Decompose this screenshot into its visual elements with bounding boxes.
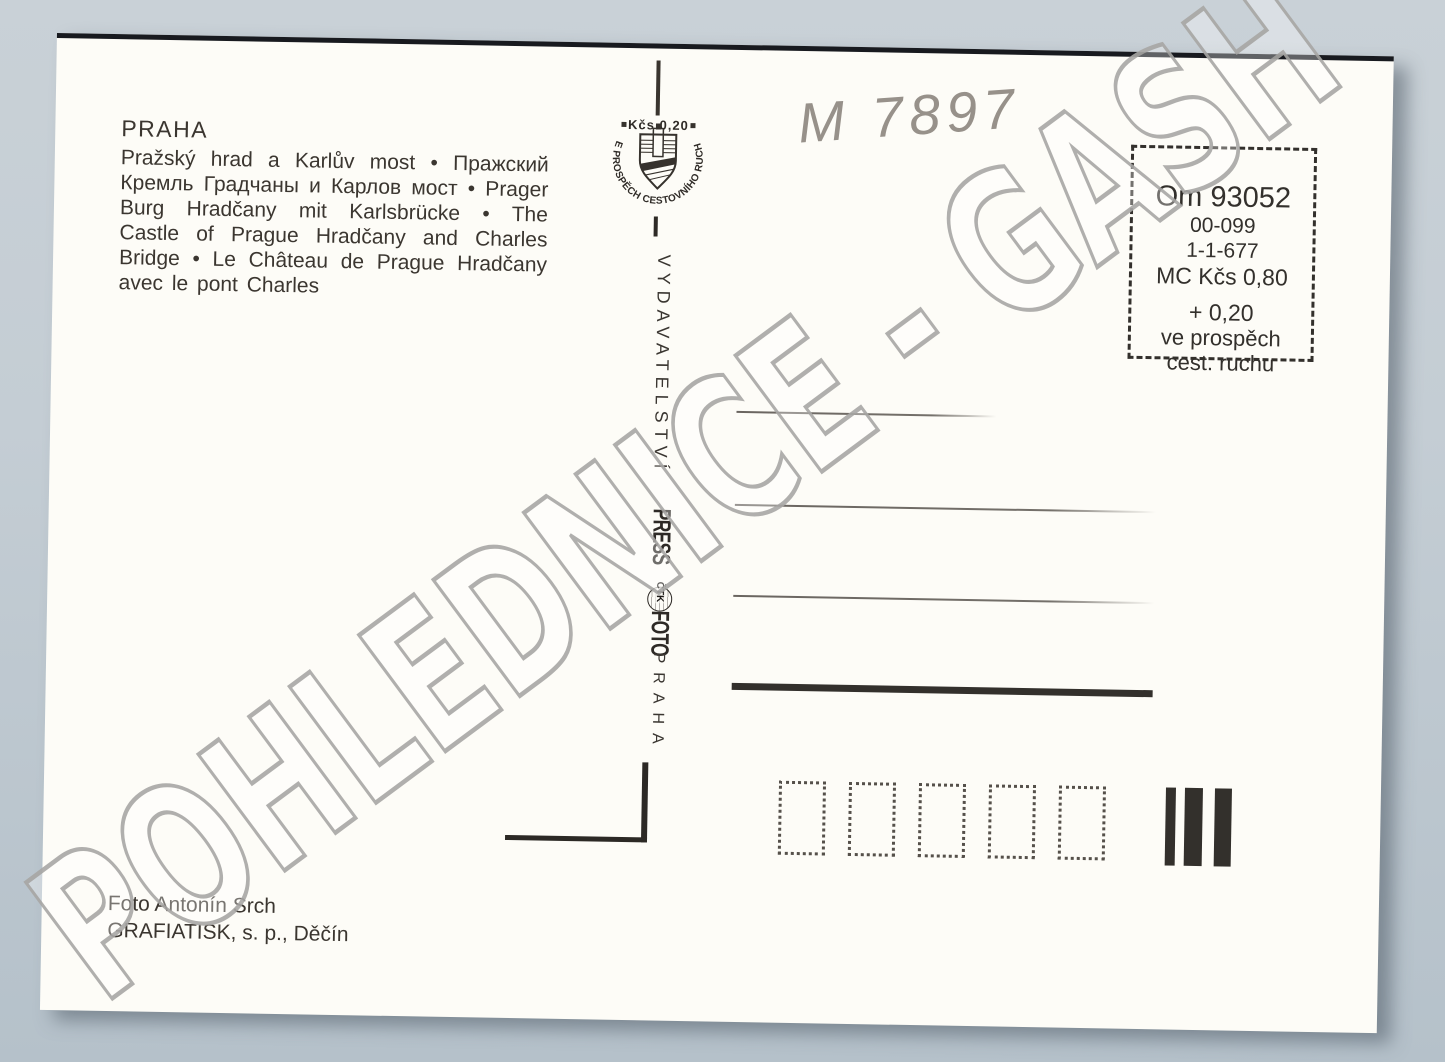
price-box-price: MC Kčs 0,80 [1132, 262, 1312, 292]
postal-code-box [848, 782, 896, 857]
registration-mark-middle [654, 216, 658, 236]
credits-block: Foto Antonín Srch GRAFIATISK, s. p., Děč… [107, 890, 349, 948]
address-line-1 [736, 411, 996, 418]
postcard-title: PRAHA [121, 115, 208, 144]
price-box: Om 93052 00-099 1-1-677 MC Kčs 0,80 + 0,… [1127, 145, 1317, 362]
printer-credit: GRAFIATISK, s. p., Děčín [107, 917, 349, 948]
postal-code-box [778, 781, 826, 856]
ctk-globe-icon: ČTK [647, 586, 672, 611]
city-vertical-text: PRAHA [648, 652, 668, 752]
sorting-bar [1214, 788, 1232, 866]
ctk-text: ČTK [654, 581, 665, 604]
price-box-note: ve prospěch [1131, 324, 1311, 352]
emblem-right-square [690, 123, 695, 128]
crop-corner-mark-horizontal [505, 835, 647, 842]
price-box-line: 00-099 [1133, 212, 1313, 240]
address-thick-line [732, 683, 1153, 697]
sorting-bar [1184, 788, 1203, 866]
price-box-surcharge: + 0,20 [1131, 298, 1311, 327]
emblem-castle-tower [653, 128, 663, 156]
press-logo-foto-text: FOTO [644, 610, 674, 656]
press-logo-press-text: PRESS [646, 508, 676, 564]
postal-code-boxes [778, 781, 1106, 861]
price-box-line: 1-1-677 [1132, 237, 1312, 265]
price-box-note: cest. ruchu [1130, 349, 1310, 377]
registration-mark-top [656, 60, 661, 115]
price-box-code: Om 93052 [1133, 180, 1314, 215]
address-line-3 [733, 595, 1154, 604]
scan-background: PRAHA Pražský hrad a Karlův most • Пражс… [0, 0, 1445, 1062]
publisher-vertical-text: VYDAVATELSTVÍ [649, 254, 674, 474]
postal-code-box [918, 783, 966, 858]
postal-code-box [988, 784, 1036, 859]
postcard-back: PRAHA Pražský hrad a Karlův most • Пражс… [40, 33, 1394, 1033]
emblem-castle-tower-top [656, 123, 661, 129]
sorting-bar [1165, 787, 1176, 865]
handwritten-catalog-number: M 7897 [796, 75, 1023, 155]
photographer-credit: Foto Antonín Srch [108, 890, 350, 921]
address-line-2 [735, 504, 1156, 513]
postcard-caption: Pražský hrad a Karlův most • Пражский Кр… [118, 145, 549, 302]
emblem-left-square [621, 122, 626, 127]
postal-code-box [1058, 786, 1106, 861]
crop-corner-mark-vertical [641, 762, 648, 842]
press-ctk-foto-logo: PRESS ČTK FOTO [644, 508, 676, 675]
tourism-stamp-emblem: Kčs 0,20 VE PROSPĚCH CESTOVNÍHO RUCHU [604, 112, 712, 226]
